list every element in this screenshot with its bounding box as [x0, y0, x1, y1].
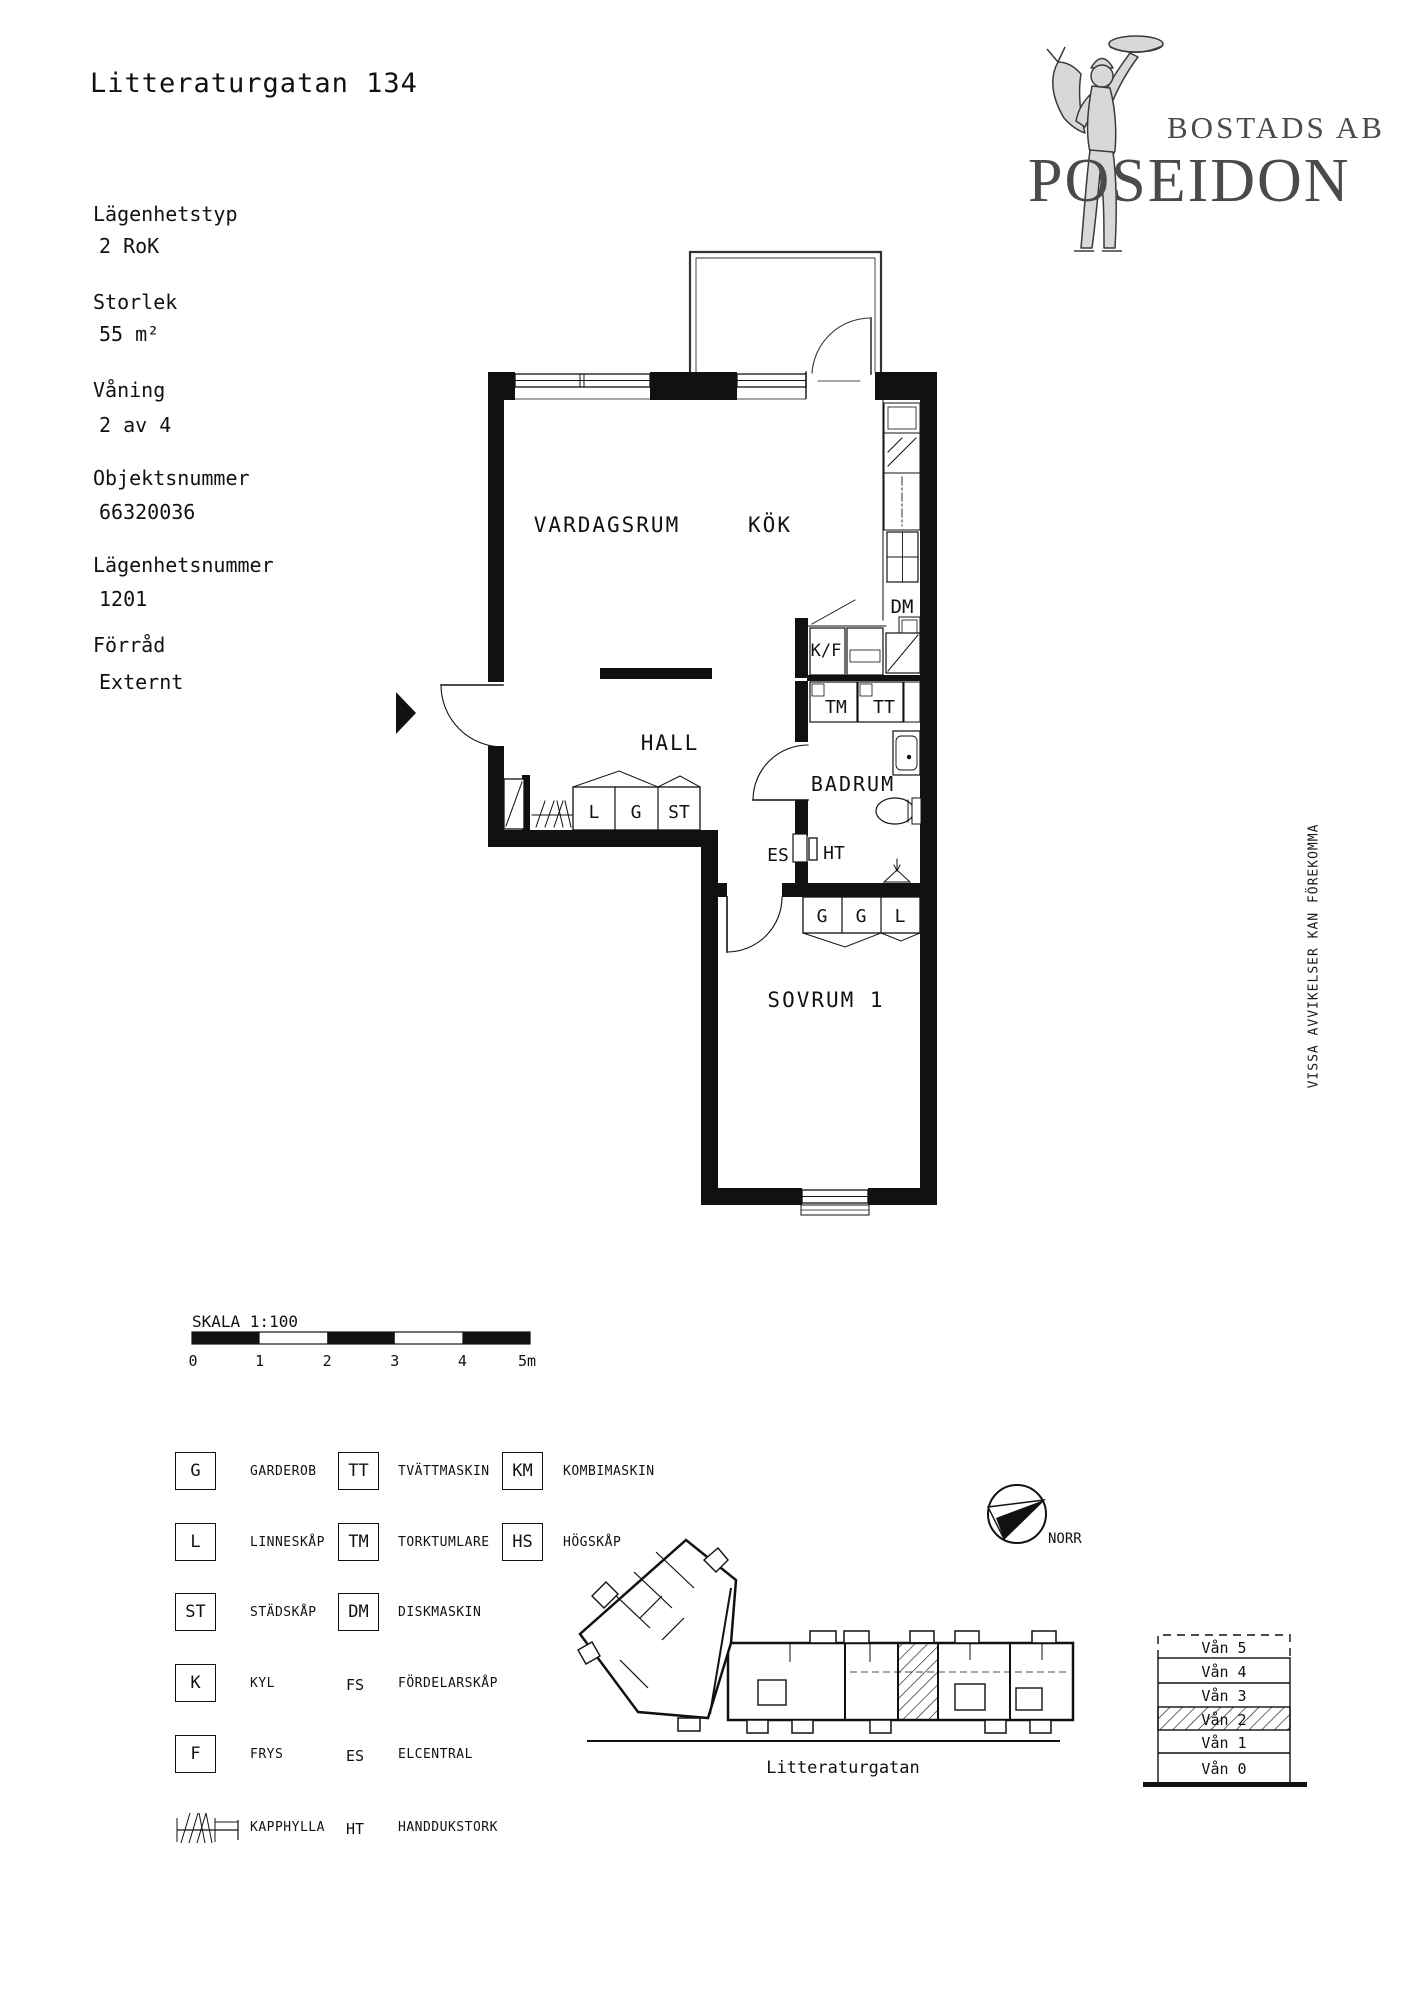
- kapphylla-icon: [177, 1813, 238, 1843]
- scale-bar: SKALA 1:100 0 1 2 3 4 5m: [188, 1312, 536, 1370]
- label-bed-g1: G: [817, 906, 828, 927]
- north-label: NORR: [1048, 1531, 1082, 1547]
- floor-plan: VARDAGSRUM KÖK HALL BADRUM SOVRUM 1 DM K…: [396, 252, 937, 1215]
- label-tm: TM: [825, 697, 847, 718]
- street-label: Litteraturgatan: [766, 1758, 920, 1778]
- scale-tick: 2: [323, 1352, 332, 1370]
- field-label-object-number: Objektsnummer: [93, 466, 250, 490]
- field-value-floor: 2 av 4: [99, 413, 171, 437]
- label-ht: HT: [823, 843, 845, 864]
- label-es: ES: [767, 845, 789, 866]
- legend-symbol-hogskap: HS: [502, 1523, 543, 1561]
- entry-door: [441, 685, 503, 747]
- room-label-kitchen: KÖK: [748, 512, 792, 537]
- legend-label-linneskap: LINNESKÅP: [250, 1535, 325, 1550]
- field-label-apartment-type: Lägenhetstyp: [93, 202, 238, 226]
- legend-symbol-tvattmaskin: TT: [338, 1452, 379, 1490]
- bedroom-door: [727, 897, 782, 952]
- label-bed-g2: G: [856, 906, 867, 927]
- kitchen-window: [737, 372, 860, 399]
- field-value-apartment-number: 1201: [99, 587, 147, 611]
- site-plan-current-unit: [898, 1643, 938, 1720]
- legend-symbol-fordelarskap: FS: [346, 1676, 364, 1694]
- field-value-storage: Externt: [99, 670, 183, 694]
- legend-symbol-stadskap: ST: [175, 1593, 216, 1631]
- legend-symbol-diskmaskin: DM: [338, 1593, 379, 1631]
- field-value-size: 55 m²: [99, 322, 159, 346]
- room-label-living: VARDAGSRUM: [534, 513, 680, 537]
- floor-level: Vån 4: [1201, 1663, 1246, 1681]
- balcony: [690, 252, 881, 374]
- legend-symbol-kyl: K: [175, 1664, 216, 1702]
- legend-symbol-torktumlare: TM: [338, 1523, 379, 1561]
- floor-level: Vån 0: [1201, 1760, 1246, 1778]
- legend-symbol-handdukstork: HT: [346, 1820, 364, 1838]
- hall-shaft: [504, 779, 524, 829]
- disclaimer-text: VISSA AVVIKELSER KAN FÖREKOMMA: [1307, 824, 1325, 1089]
- floor-level-current: Vån 2: [1201, 1711, 1246, 1729]
- legend-label-handdukstork: HANDDUKSTORK: [398, 1820, 498, 1835]
- floor-level: Vån 5: [1201, 1639, 1246, 1657]
- legend-label-frys: FRYS: [250, 1747, 283, 1762]
- legend-symbol-linneskap: L: [175, 1523, 216, 1561]
- field-label-storage: Förråd: [93, 633, 165, 657]
- field-value-object-number: 66320036: [99, 500, 195, 524]
- legend-label-hogskap: HÖGSKÅP: [563, 1535, 621, 1550]
- floorplan-sheet: VARDAGSRUM KÖK HALL BADRUM SOVRUM 1 DM K…: [0, 0, 1413, 2000]
- floor-stack: Vån 5 Vån 4 Vån 3 Vån 2 Vån 1 Vån 0: [1143, 1635, 1307, 1787]
- entry-arrow-icon: [396, 692, 416, 734]
- label-closet-g: G: [631, 802, 642, 823]
- page-title: Litteraturgatan 134: [90, 68, 418, 99]
- scale-tick: 1: [255, 1352, 264, 1370]
- room-label-bedroom: SOVRUM 1: [767, 988, 884, 1012]
- legend-label-kyl: KYL: [250, 1676, 275, 1691]
- legend-symbol-frys: F: [175, 1735, 216, 1773]
- legend-symbol-kombimaskin: KM: [502, 1452, 543, 1490]
- legend-label-diskmaskin: DISKMASKIN: [398, 1605, 481, 1620]
- living-room-window: [515, 374, 650, 399]
- label-closet-st: ST: [668, 802, 690, 823]
- bedroom-window: [801, 1190, 869, 1215]
- field-label-floor: Våning: [93, 378, 165, 402]
- scale-tick: 4: [458, 1352, 467, 1370]
- legend-label-kombimaskin: KOMBIMASKIN: [563, 1464, 655, 1479]
- floor-level: Vån 1: [1201, 1734, 1246, 1752]
- room-label-hall: HALL: [641, 731, 700, 755]
- logo-company-prefix: BOSTADS AB: [1167, 110, 1385, 146]
- scale-title: SKALA 1:100: [192, 1312, 298, 1331]
- legend-label-tvattmaskin: TVÄTTMASKIN: [398, 1464, 490, 1479]
- legend-label-torktumlare: TORKTUMLARE: [398, 1535, 490, 1550]
- north-compass-icon: NORR: [988, 1485, 1082, 1547]
- legend-label-garderob: GARDEROB: [250, 1464, 317, 1479]
- label-tt: TT: [873, 697, 895, 718]
- legend-label-kapphylla: KAPPHYLLA: [250, 1820, 325, 1835]
- room-label-bathroom: BADRUM: [811, 772, 895, 796]
- field-label-size: Storlek: [93, 290, 177, 314]
- floor-level: Vån 3: [1201, 1687, 1246, 1705]
- field-label-apartment-number: Lägenhetsnummer: [93, 553, 274, 577]
- legend-label-stadskap: STÄDSKÅP: [250, 1605, 317, 1620]
- legend-symbol-garderob: G: [175, 1452, 216, 1490]
- label-closet-l: L: [589, 802, 600, 823]
- legend-symbol-elcentral: ES: [346, 1747, 364, 1765]
- label-bed-l: L: [895, 906, 906, 927]
- scale-tick: 5m: [518, 1352, 536, 1370]
- poseidon-statue-icon: [1047, 36, 1163, 251]
- logo-company-name: POSEIDON: [1028, 146, 1351, 217]
- field-value-apartment-type: 2 RoK: [99, 234, 159, 258]
- scale-tick: 0: [188, 1352, 197, 1370]
- label-dm: DM: [891, 596, 914, 618]
- legend-label-elcentral: ELCENTRAL: [398, 1747, 473, 1762]
- site-plan: Litteraturgatan: [578, 1540, 1073, 1778]
- scale-tick: 3: [390, 1352, 399, 1370]
- label-kf: K/F: [811, 641, 842, 661]
- legend-label-fordelarskap: FÖRDELARSKÅP: [398, 1676, 498, 1691]
